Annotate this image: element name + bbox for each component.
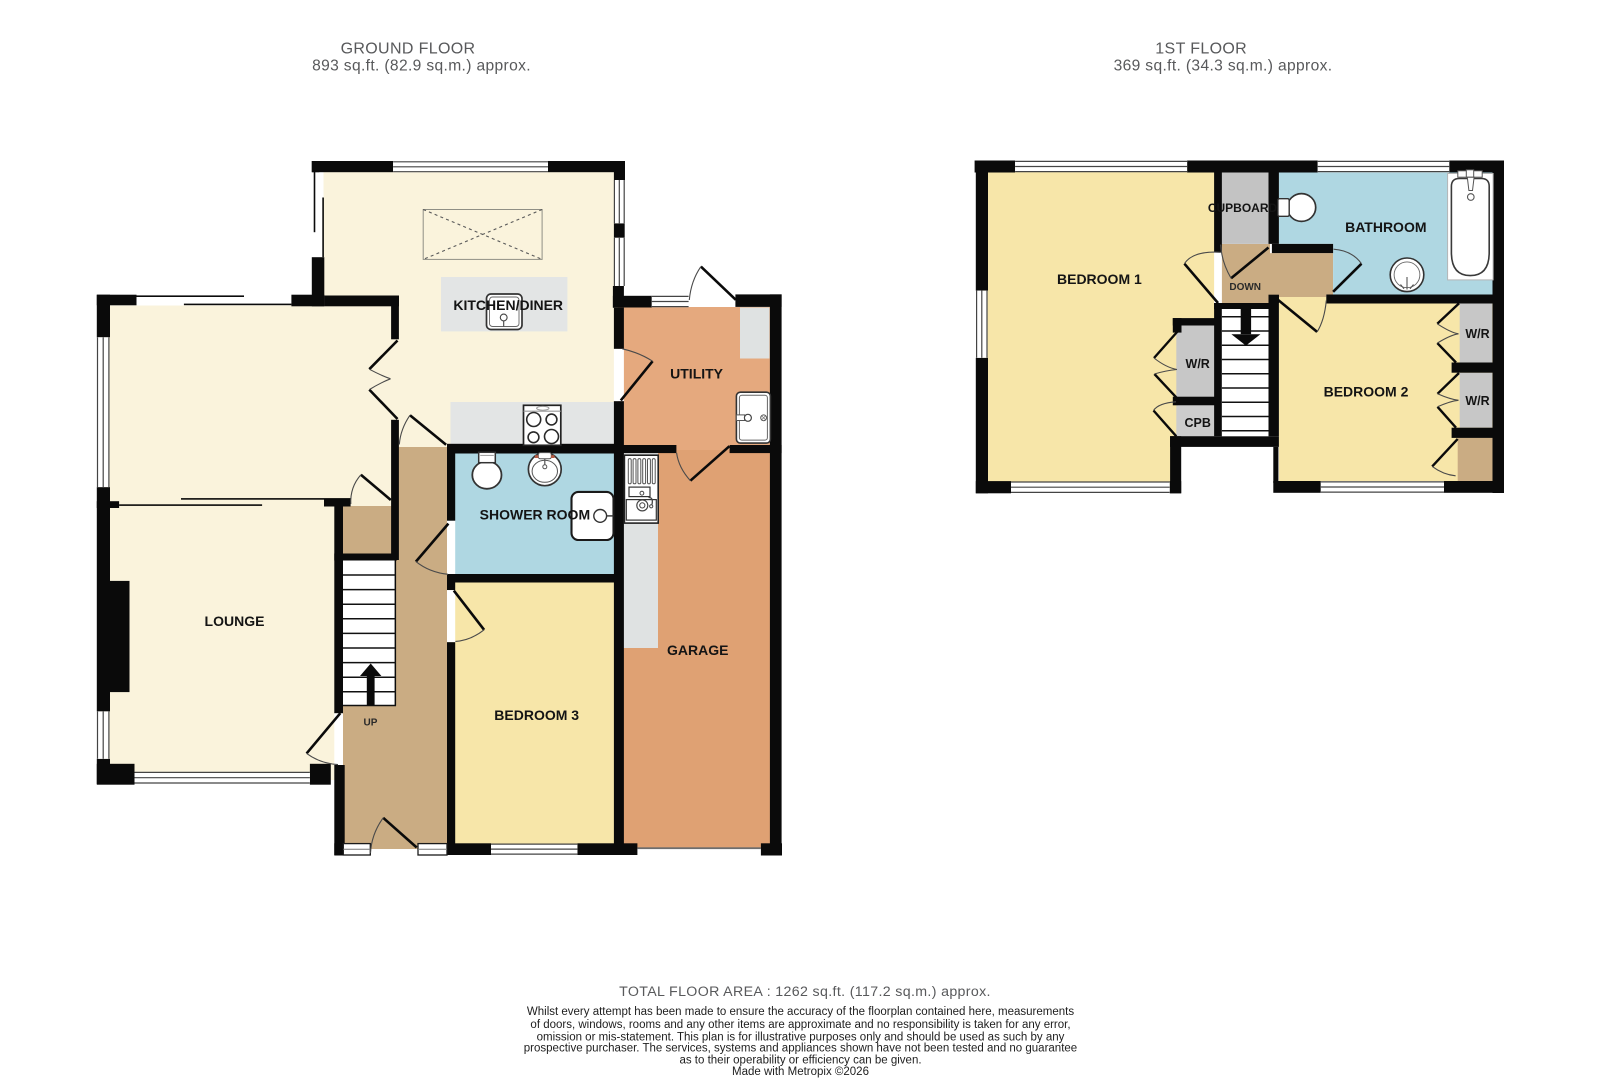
svg-text:GROUND FLOOR: GROUND FLOOR	[341, 41, 476, 58]
svg-text:SHOWER ROOM: SHOWER ROOM	[480, 507, 590, 523]
svg-text:BEDROOM 3: BEDROOM 3	[494, 707, 579, 723]
svg-text:LOUNGE: LOUNGE	[205, 613, 265, 629]
svg-text:1ST FLOOR: 1ST FLOOR	[1155, 41, 1247, 58]
svg-text:of doors, windows, rooms and a: of doors, windows, rooms and any other i…	[530, 1019, 1070, 1031]
svg-text:GARAGE: GARAGE	[667, 642, 728, 658]
svg-text:BEDROOM 2: BEDROOM 2	[1324, 384, 1409, 400]
svg-text:W/R: W/R	[1186, 357, 1210, 371]
svg-text:CPB: CPB	[1184, 416, 1210, 430]
svg-text:as to their operability or eff: as to their operability or efficiency ca…	[679, 1055, 921, 1067]
svg-text:W/R: W/R	[1465, 327, 1489, 341]
svg-text:W/R: W/R	[1465, 394, 1489, 408]
svg-text:KITCHEN/DINER: KITCHEN/DINER	[453, 297, 563, 313]
svg-text:893 sq.ft. (82.9 sq.m.) approx: 893 sq.ft. (82.9 sq.m.) approx.	[312, 58, 531, 75]
svg-text:Made with Metropix ©2026: Made with Metropix ©2026	[732, 1066, 869, 1078]
svg-text:Whilst every attempt has been: Whilst every attempt has been made to en…	[527, 1006, 1074, 1018]
svg-text:UTILITY: UTILITY	[670, 366, 724, 382]
svg-text:369 sq.ft. (34.3 sq.m.) approx: 369 sq.ft. (34.3 sq.m.) approx.	[1114, 58, 1333, 75]
svg-text:BEDROOM 1: BEDROOM 1	[1057, 271, 1142, 287]
svg-text:DOWN: DOWN	[1229, 282, 1261, 293]
svg-text:BATHROOM: BATHROOM	[1345, 219, 1426, 235]
svg-text:UP: UP	[364, 718, 378, 729]
svg-text:prospective purchaser. The ser: prospective purchaser. The services, sys…	[524, 1043, 1077, 1055]
svg-text:CUPBOARD: CUPBOARD	[1208, 201, 1278, 215]
svg-text:TOTAL FLOOR AREA : 1262 sq.ft.: TOTAL FLOOR AREA : 1262 sq.ft. (117.2 sq…	[619, 984, 991, 1000]
